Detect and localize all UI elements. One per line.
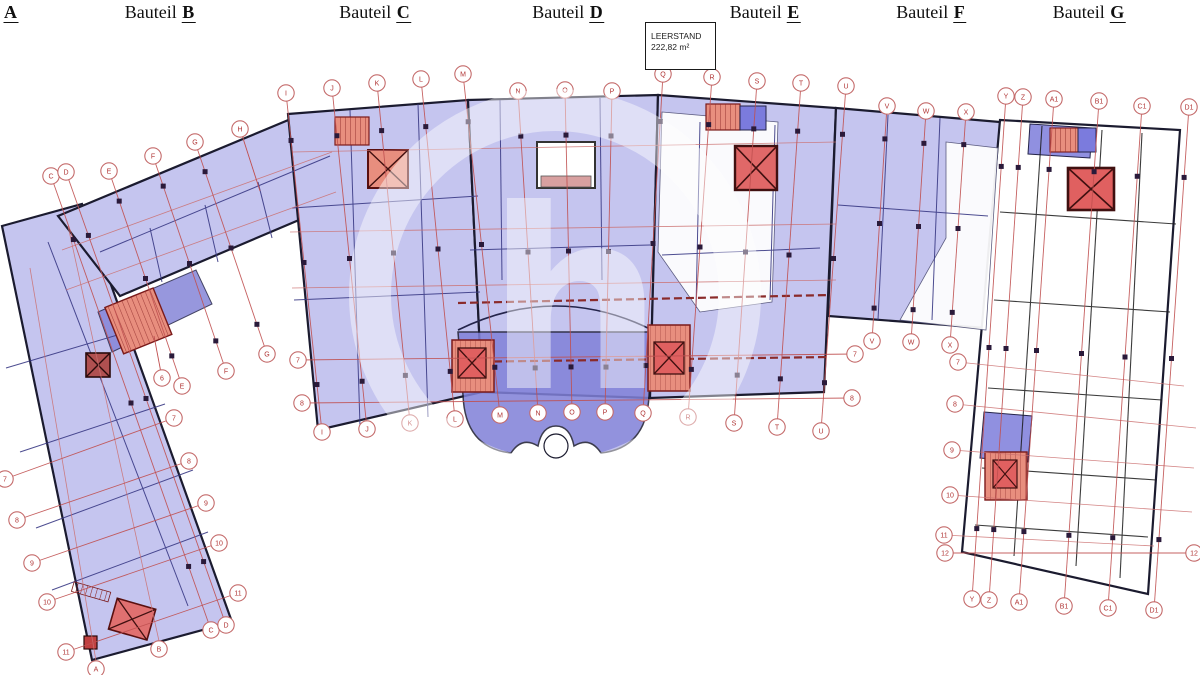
svg-text:10: 10 (43, 599, 51, 606)
grid-bubble-W: W (903, 334, 919, 350)
grid-bubble-P: P (604, 83, 620, 99)
svg-text:C1: C1 (1138, 103, 1147, 110)
column-marker (778, 376, 783, 381)
grid-bubble-C: C (203, 622, 219, 638)
section-title-e-prefix: Bauteil (730, 2, 782, 22)
svg-text:7: 7 (296, 357, 300, 364)
column-marker (877, 221, 882, 226)
grid-bubble-K: K (369, 75, 385, 91)
grid-bubble-12: 12 (937, 545, 953, 561)
svg-text:U: U (818, 428, 823, 435)
svg-text:T: T (775, 424, 780, 431)
grid-bubble-A1: A1 (1011, 594, 1027, 610)
svg-text:J: J (365, 426, 369, 433)
column-marker (403, 373, 408, 378)
vacancy-label-line2: 222,82 m² (651, 42, 713, 53)
column-marker (1169, 356, 1174, 361)
vacancy-label-line1: LEERSTAND (651, 31, 713, 42)
column-marker (999, 164, 1004, 169)
svg-text:D: D (63, 169, 68, 176)
section-title-a: Bauteil A (0, 2, 18, 23)
svg-text:E: E (107, 168, 112, 175)
grid-bubble-L: L (413, 71, 429, 87)
svg-text:R: R (685, 414, 690, 421)
grid-bubble-Z: Z (981, 592, 997, 608)
grid-bubble-10: 10 (39, 594, 55, 610)
column-marker (658, 119, 663, 124)
svg-text:Z: Z (1021, 94, 1026, 101)
column-marker (1123, 355, 1128, 360)
column-marker (787, 253, 792, 258)
column-marker (911, 307, 916, 312)
svg-text:D1: D1 (1150, 607, 1159, 614)
grid-bubble-9: 9 (944, 442, 960, 458)
column-marker (86, 233, 91, 238)
grid-bubble-Y: Y (998, 88, 1014, 104)
column-marker (423, 124, 428, 129)
column-marker (289, 138, 294, 143)
svg-text:V: V (870, 338, 875, 345)
grid-bubble-C1: C1 (1100, 600, 1116, 616)
column-marker (991, 527, 996, 532)
grid-bubble-P: P (597, 404, 613, 420)
column-marker (1034, 348, 1039, 353)
column-marker (143, 276, 148, 281)
column-marker (950, 310, 955, 315)
grid-bubble-S: S (726, 415, 742, 431)
svg-text:L: L (453, 416, 457, 423)
column-marker (698, 245, 703, 250)
grid-bubble-B: B (151, 641, 167, 657)
svg-text:8: 8 (187, 458, 191, 465)
column-marker (144, 396, 149, 401)
grid-bubble-B1: B1 (1091, 93, 1107, 109)
column-marker (1021, 529, 1026, 534)
grid-bubble-O: O (557, 82, 573, 98)
svg-text:7: 7 (3, 476, 7, 483)
column-marker (795, 129, 800, 134)
section-title-g: Bauteil G (1053, 2, 1126, 23)
svg-text:C: C (48, 173, 53, 180)
column-marker (563, 133, 568, 138)
svg-text:H: H (237, 126, 242, 133)
grid-bubble-J: J (324, 80, 340, 96)
grid-bubble-7: 7 (950, 354, 966, 370)
grid-bubble-J: J (359, 421, 375, 437)
grid-bubble-R: R (680, 409, 696, 425)
svg-text:P: P (603, 409, 608, 416)
grid-bubble-11: 11 (58, 644, 74, 660)
column-marker (334, 133, 339, 138)
svg-text:Q: Q (660, 71, 666, 78)
svg-text:F: F (151, 153, 155, 160)
svg-text:D: D (223, 622, 228, 629)
svg-text:8: 8 (15, 517, 19, 524)
svg-text:W: W (923, 108, 930, 115)
section-title-d-letter: D (589, 2, 604, 23)
svg-text:W: W (908, 339, 915, 346)
atrium-notch (544, 434, 568, 458)
column-marker (831, 256, 836, 261)
grid-bubble-9: 9 (198, 495, 214, 511)
grid-bubble-M: M (492, 407, 508, 423)
column-marker (533, 365, 538, 370)
section-title-b: Bauteil B (125, 2, 196, 23)
grid-bubble-7: 7 (166, 410, 182, 426)
grid-bubble-C1: C1 (1134, 98, 1150, 114)
svg-text:M: M (460, 71, 466, 78)
grid-bubble-D: D (218, 617, 234, 633)
column-marker (643, 363, 648, 368)
svg-text:I: I (285, 90, 287, 97)
column-marker (689, 367, 694, 372)
section-title-e-letter: E (786, 2, 800, 23)
grid-bubble-D: D (58, 164, 74, 180)
section-title-c: Bauteil C (339, 2, 411, 23)
column-marker (518, 134, 523, 139)
column-marker (448, 369, 453, 374)
section-title-d: Bauteil D (532, 2, 604, 23)
column-marker (1182, 175, 1187, 180)
svg-text:Z: Z (987, 597, 992, 604)
column-marker (706, 122, 711, 127)
svg-text:Q: Q (640, 410, 646, 417)
svg-text:T: T (799, 80, 804, 87)
grid-bubble-C: C (43, 168, 59, 184)
svg-text:B1: B1 (1060, 603, 1069, 610)
grid-bubble-L: L (447, 411, 463, 427)
column-marker (347, 256, 352, 261)
grid-bubble-I: I (278, 85, 294, 101)
grid-bubble-U: U (813, 423, 829, 439)
column-marker (1079, 351, 1084, 356)
svg-text:D1: D1 (1185, 104, 1194, 111)
column-marker (492, 365, 497, 370)
grid-bubble-H: H (232, 121, 248, 137)
column-marker (186, 564, 191, 569)
column-marker (566, 249, 571, 254)
column-marker (203, 169, 208, 174)
grid-bubble-M: M (455, 66, 471, 82)
grid-bubble-10: 10 (942, 487, 958, 503)
grid-bubble-E: E (101, 163, 117, 179)
svg-text:K: K (375, 80, 380, 87)
column-marker (735, 373, 740, 378)
column-marker (201, 559, 206, 564)
column-marker (526, 250, 531, 255)
column-marker (466, 119, 471, 124)
grid-bubble-W: W (918, 103, 934, 119)
grid-bubble-G: G (259, 346, 275, 362)
grid-bubble-V: V (864, 333, 880, 349)
grid-bubble-N: N (530, 405, 546, 421)
column-marker (569, 364, 574, 369)
section-title-e: Bauteil E (730, 2, 801, 23)
column-marker (71, 237, 76, 242)
svg-text:S: S (755, 78, 760, 85)
section-title-g-letter: G (1109, 2, 1125, 23)
section-title-f: Bauteil F (896, 2, 966, 23)
column-marker (751, 126, 756, 131)
column-marker (229, 246, 234, 251)
svg-text:6: 6 (160, 375, 164, 382)
svg-text:K: K (408, 420, 413, 427)
column-marker (743, 250, 748, 255)
svg-text:10: 10 (946, 492, 954, 499)
column-marker (360, 379, 365, 384)
column-marker (651, 241, 656, 246)
grid-bubble-E: E (174, 378, 190, 394)
svg-text:B1: B1 (1095, 98, 1104, 105)
svg-text:8: 8 (300, 400, 304, 407)
section-title-f-prefix: Bauteil (896, 2, 948, 22)
grid-bubble-F: F (218, 363, 234, 379)
grid-bubble-8: 8 (947, 396, 963, 412)
grid-bubble-U: U (838, 78, 854, 94)
svg-text:C: C (208, 627, 213, 634)
column-marker (117, 199, 122, 204)
vacancy-label-box: LEERSTAND 222,82 m² (645, 22, 716, 70)
grid-bubble-Q: Q (635, 405, 651, 421)
section-title-g-prefix: Bauteil (1053, 2, 1105, 22)
svg-text:M: M (497, 412, 503, 419)
grid-bubble-K: K (402, 415, 418, 431)
column-marker (974, 526, 979, 531)
column-marker (169, 353, 174, 358)
column-marker (1092, 169, 1097, 174)
svg-text:O: O (569, 409, 575, 416)
svg-text:7: 7 (956, 359, 960, 366)
svg-text:Y: Y (1004, 93, 1009, 100)
grid-bubble-F: F (145, 148, 161, 164)
grid-bubble-7: 7 (847, 346, 863, 362)
grid-bubble-B1: B1 (1056, 598, 1072, 614)
svg-text:A1: A1 (1050, 96, 1059, 103)
svg-text:L: L (419, 76, 423, 83)
svg-text:9: 9 (950, 447, 954, 454)
column-marker (1110, 535, 1115, 540)
grid-bubble-7: 7 (290, 352, 306, 368)
column-marker (187, 261, 192, 266)
column-marker (302, 260, 307, 265)
section-title-c-letter: C (396, 2, 411, 23)
column-marker (882, 136, 887, 141)
grid-bubble-Y: Y (964, 591, 980, 607)
grid-bubble-10: 10 (211, 535, 227, 551)
svg-text:9: 9 (30, 560, 34, 567)
svg-text:12: 12 (1190, 550, 1198, 557)
section-title-f-letter: F (953, 2, 966, 23)
svg-text:S: S (732, 420, 737, 427)
grid-bubble-8: 8 (294, 395, 310, 411)
svg-text:G: G (264, 351, 269, 358)
column-marker (609, 133, 614, 138)
grid-bubble-11: 11 (230, 585, 246, 601)
svg-text:X: X (964, 109, 969, 116)
svg-text:A1: A1 (1015, 599, 1024, 606)
svg-text:N: N (535, 410, 540, 417)
grid-bubble-V: V (879, 98, 895, 114)
column-marker (872, 306, 877, 311)
column-marker (921, 141, 926, 146)
svg-text:O: O (562, 87, 568, 94)
column-marker (213, 338, 218, 343)
grid-bubble-8: 8 (181, 453, 197, 469)
column-marker (961, 142, 966, 147)
column-marker (436, 247, 441, 252)
column-marker (1156, 537, 1161, 542)
floor-plan-drawing: CDEFGHIJKLMNOPQRSTUVWXYZA1B1C1D16EFG78IJ… (0, 0, 1200, 675)
column-marker (1047, 167, 1052, 172)
grid-bubble-I: I (314, 424, 330, 440)
section-title-c-prefix: Bauteil (339, 2, 391, 22)
svg-text:A: A (94, 666, 99, 673)
svg-text:8: 8 (953, 401, 957, 408)
column-marker (916, 224, 921, 229)
grid-bubble-T: T (769, 419, 785, 435)
svg-text:11: 11 (62, 649, 69, 656)
grid-bubble-8: 8 (844, 390, 860, 406)
section-title-b-prefix: Bauteil (125, 2, 177, 22)
svg-text:X: X (948, 342, 953, 349)
grid-bubble-N: N (510, 83, 526, 99)
grid-bubble-S: S (749, 73, 765, 89)
svg-text:11: 11 (234, 590, 241, 597)
section-title-d-prefix: Bauteil (532, 2, 584, 22)
svg-text:P: P (610, 88, 615, 95)
svg-text:Y: Y (970, 596, 975, 603)
grid-bubble-9: 9 (24, 555, 40, 571)
column-marker (379, 128, 384, 133)
svg-text:11: 11 (940, 532, 947, 539)
grid-bubble-A: A (88, 661, 104, 675)
svg-text:J: J (330, 85, 334, 92)
column-marker (1016, 165, 1021, 170)
grid-bubble-11: 11 (936, 527, 952, 543)
column-marker (1004, 346, 1009, 351)
svg-text:9: 9 (204, 500, 208, 507)
grid-bubble-8: 8 (9, 512, 25, 528)
grid-bubble-D1: D1 (1181, 99, 1197, 115)
svg-text:10: 10 (215, 540, 223, 547)
grid-bubble-O: O (564, 404, 580, 420)
section-title-a-letter: A (3, 2, 18, 23)
column-marker (840, 132, 845, 137)
grid-bubble-X: X (958, 104, 974, 120)
column-marker (314, 382, 319, 387)
svg-text:C1: C1 (1104, 605, 1113, 612)
grid-bubble-6: 6 (154, 370, 170, 386)
svg-text:12: 12 (941, 550, 949, 557)
svg-text:I: I (321, 429, 323, 436)
svg-text:U: U (843, 83, 848, 90)
svg-text:7: 7 (853, 351, 857, 358)
column-marker (822, 380, 827, 385)
column-marker (1135, 174, 1140, 179)
column-marker (254, 322, 259, 327)
grid-bubble-7: 7 (0, 471, 13, 487)
section-title-b-letter: B (181, 2, 195, 23)
svg-text:E: E (180, 383, 185, 390)
column-marker (479, 242, 484, 247)
svg-text:8: 8 (850, 395, 854, 402)
svg-text:B: B (157, 646, 162, 653)
grid-bubble-Z: Z (1015, 89, 1031, 105)
svg-text:G: G (192, 139, 197, 146)
svg-text:R: R (709, 74, 714, 81)
column-marker (161, 184, 166, 189)
grid-bubble-X: X (942, 337, 958, 353)
svg-text:7: 7 (172, 415, 176, 422)
grid-bubble-D1: D1 (1146, 602, 1162, 618)
grid-bubble-G: G (187, 134, 203, 150)
column-marker (129, 401, 134, 406)
column-marker (987, 345, 992, 350)
floor-plan-canvas: CDEFGHIJKLMNOPQRSTUVWXYZA1B1C1D16EFG78IJ… (0, 0, 1200, 675)
svg-text:V: V (885, 103, 890, 110)
svg-text:F: F (224, 368, 228, 375)
grid-bubble-12: 12 (1186, 545, 1200, 561)
grid-bubble-R: R (704, 69, 720, 85)
column-marker (956, 226, 961, 231)
column-marker (391, 251, 396, 256)
grid-bubble-A1: A1 (1046, 91, 1062, 107)
column-marker (1066, 533, 1071, 538)
svg-text:N: N (515, 88, 520, 95)
grid-bubble-T: T (793, 75, 809, 91)
column-marker (606, 249, 611, 254)
column-marker (603, 365, 608, 370)
